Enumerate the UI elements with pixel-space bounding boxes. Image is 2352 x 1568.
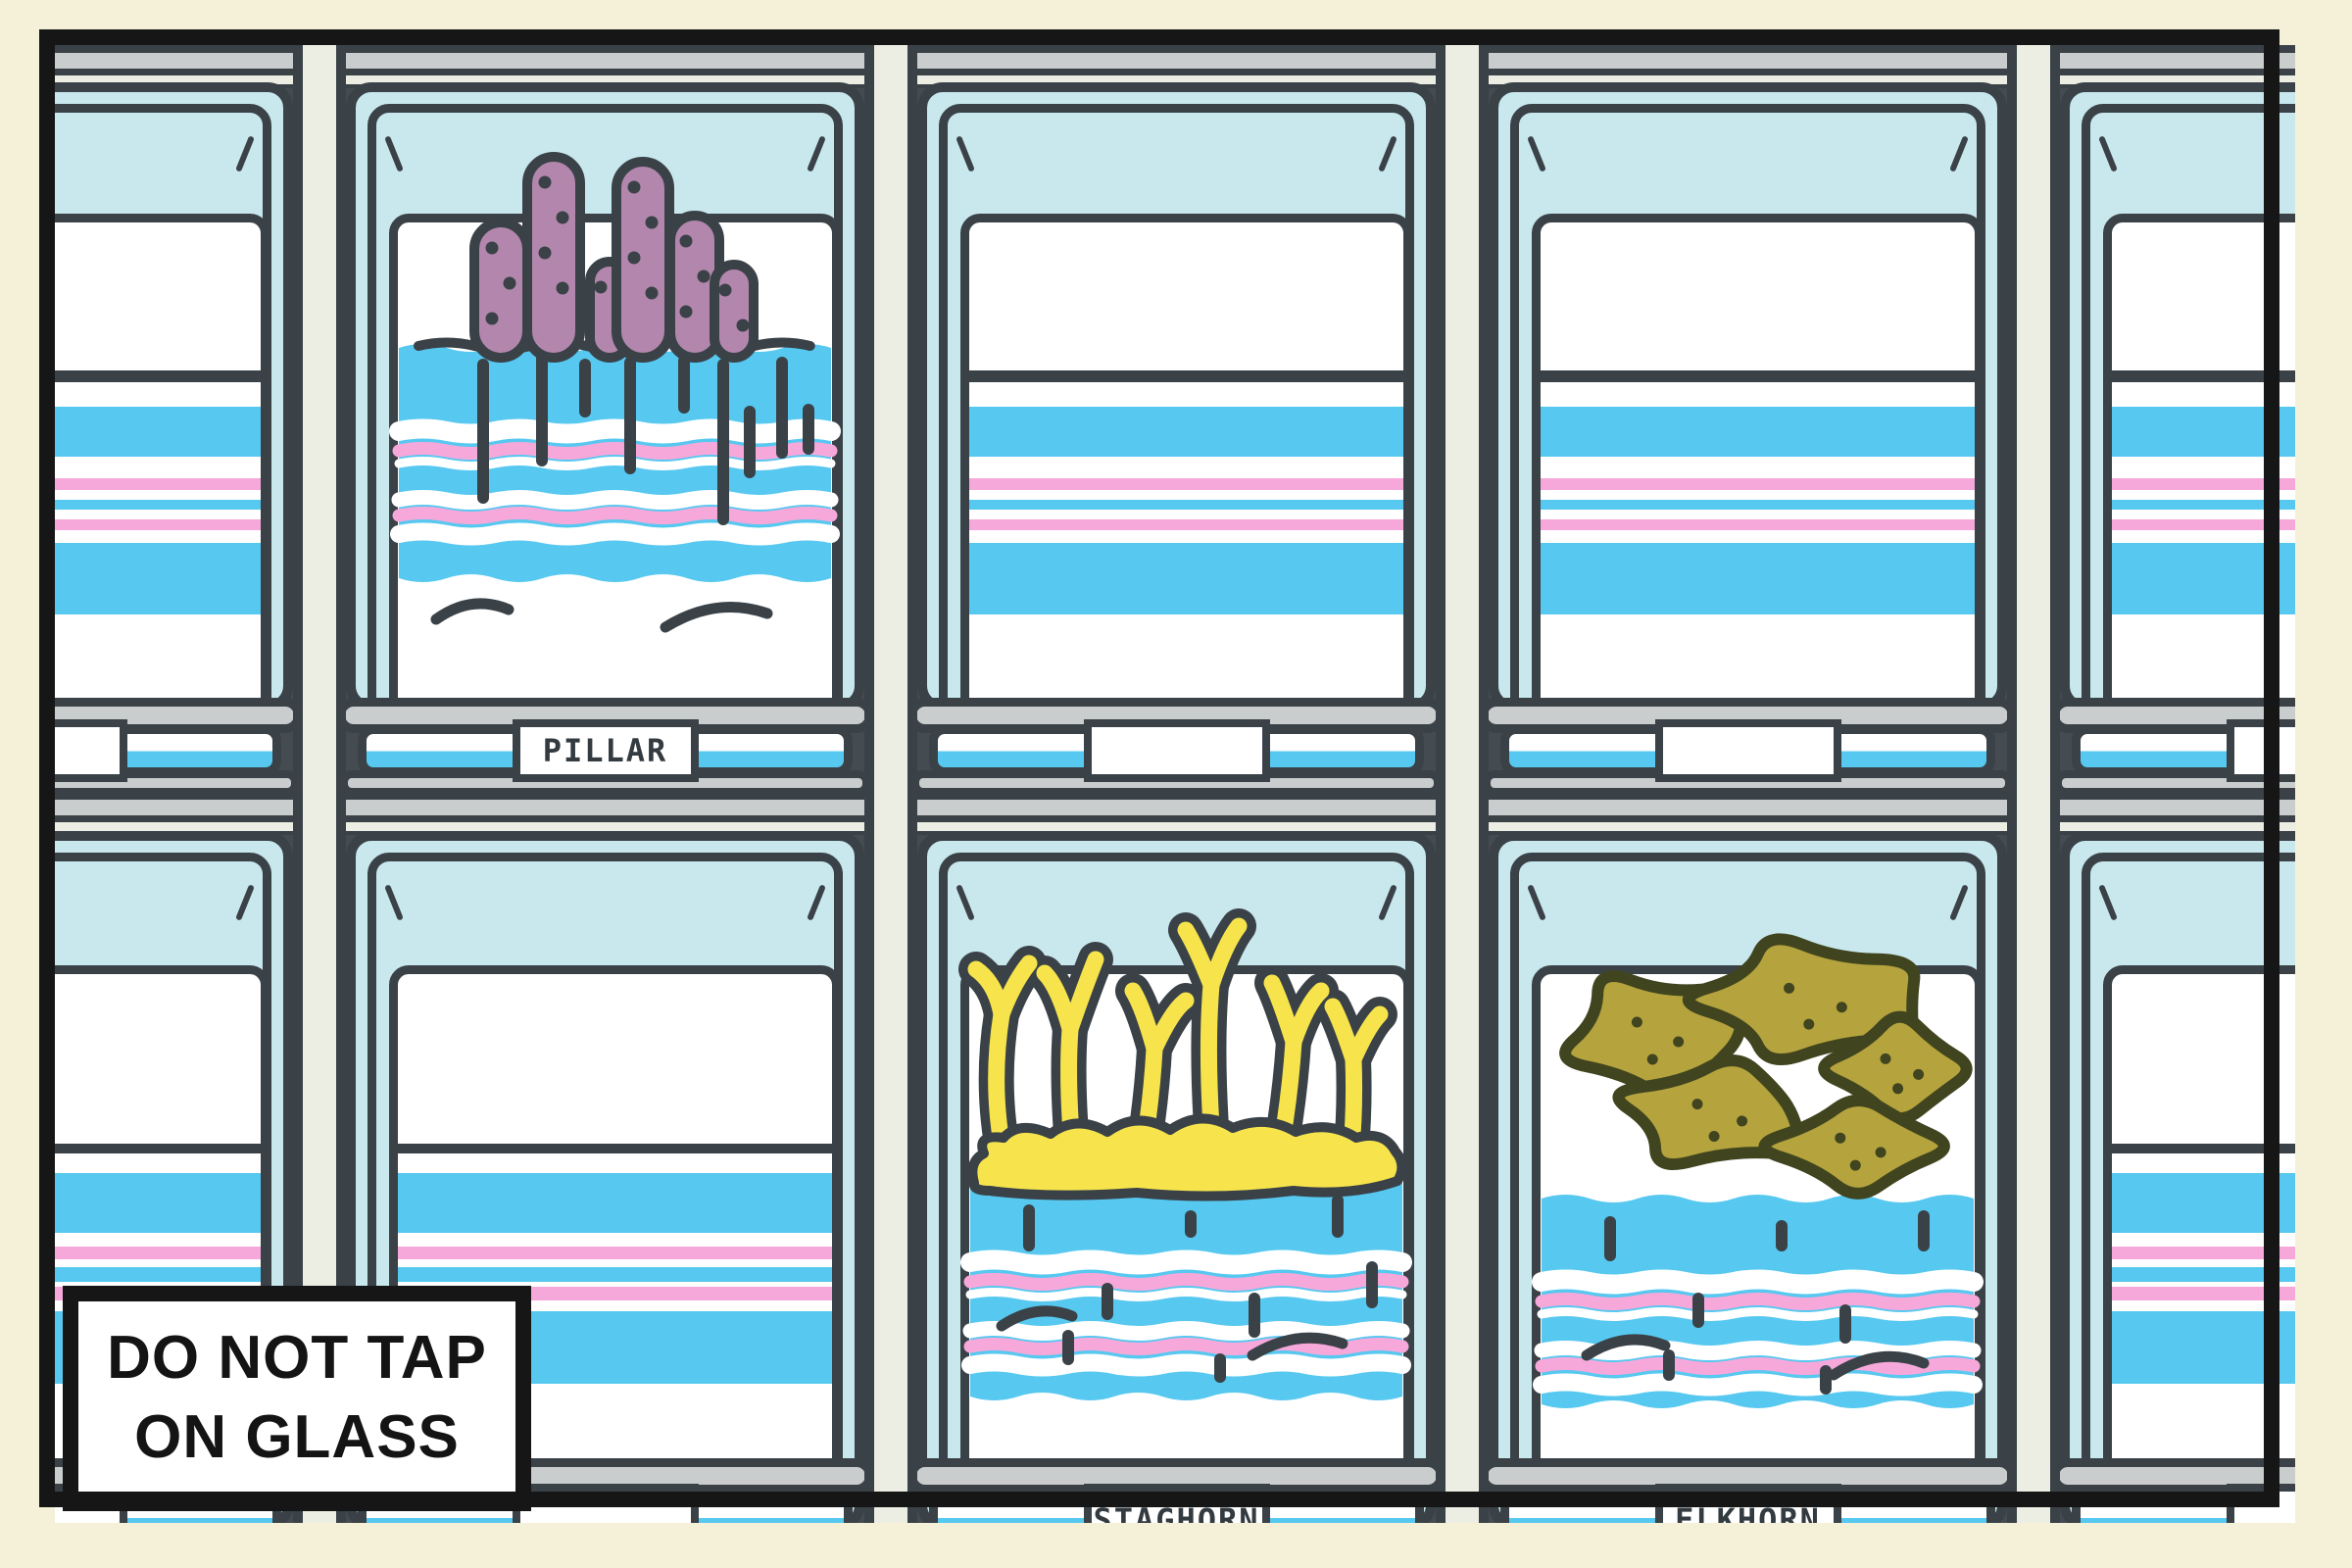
tank-shelf: STAGHORN xyxy=(907,1458,1445,1523)
aquarium-tank-staghorn: STAGHORN xyxy=(917,792,1436,1523)
tank-glass xyxy=(2060,82,2295,711)
tank-glass xyxy=(2060,831,2295,1523)
species-label: PILLAR xyxy=(543,732,668,769)
aquarium-tank xyxy=(1489,45,2007,796)
sign-line-2: ON GLASS xyxy=(134,1398,460,1478)
tank-top-frame xyxy=(55,792,299,835)
tank-shelf xyxy=(2050,1458,2295,1523)
backdrop-stripes xyxy=(2112,222,2295,711)
tank-backdrop-card xyxy=(2103,214,2295,711)
species-label-plate: ELKHORN xyxy=(1655,1484,1841,1523)
tank-backdrop-card xyxy=(1532,214,1984,711)
tank-top-frame xyxy=(911,792,1442,835)
tank-shelf: ELKHORN xyxy=(1479,1458,2017,1523)
tank-divider-post xyxy=(864,45,917,1523)
pillar-coral-illustration xyxy=(389,118,841,711)
species-label: ELKHORN xyxy=(1675,1501,1821,1523)
tank-shelf xyxy=(2050,698,2295,796)
backdrop-stripes xyxy=(55,222,261,711)
sign-line-1: DO NOT TAP xyxy=(107,1319,487,1398)
species-label-plate xyxy=(2227,1484,2296,1523)
aquarium-tank xyxy=(2060,45,2295,796)
staghorn-coral-illustration xyxy=(960,867,1412,1514)
tank-top-frame xyxy=(2054,792,2295,835)
tank-top-frame xyxy=(340,792,870,835)
tank-shelf xyxy=(1479,698,2017,796)
tank-glass xyxy=(55,82,293,711)
elkhorn-coral-illustration xyxy=(1532,867,1984,1514)
tank-backdrop-card xyxy=(2103,965,2295,1509)
aquarium-tank xyxy=(55,45,293,796)
do-not-tap-sign: DO NOT TAP ON GLASS xyxy=(63,1286,531,1511)
aquarium-scene: PILLAR xyxy=(0,0,2352,1568)
species-label-plate xyxy=(55,719,127,782)
species-label: STAGHORN xyxy=(1093,1501,1259,1523)
aquarium-tank xyxy=(2060,792,2295,1523)
backdrop-stripes xyxy=(969,222,1403,711)
backdrop-stripes xyxy=(2112,974,2295,1500)
tank-glass xyxy=(917,82,1436,711)
tank-backdrop-card xyxy=(55,214,269,711)
tank-glass xyxy=(1489,82,2007,711)
backdrop-stripes xyxy=(1541,222,1975,711)
species-label-plate xyxy=(2227,719,2296,782)
aquarium-tank xyxy=(917,45,1436,796)
species-label-plate xyxy=(1084,719,1270,782)
tank-divider-post xyxy=(1436,45,1489,1523)
tank-shelf xyxy=(55,698,303,796)
tank-glass xyxy=(917,831,1436,1523)
aquarium-tank-pillar: PILLAR xyxy=(346,45,864,796)
species-label-plate xyxy=(513,1484,699,1523)
tank-shelf xyxy=(907,698,1445,796)
aquarium-tank-elkhorn: ELKHORN xyxy=(1489,792,2007,1523)
species-label-plate xyxy=(1655,719,1841,782)
tank-divider-post xyxy=(2007,45,2060,1523)
tank-glass xyxy=(1489,831,2007,1523)
tank-glass xyxy=(346,82,864,711)
species-label-plate: PILLAR xyxy=(513,719,699,782)
tank-top-frame xyxy=(1483,792,2013,835)
tank-backdrop-card xyxy=(960,214,1412,711)
species-label-plate: STAGHORN xyxy=(1084,1484,1270,1523)
tank-shelf: PILLAR xyxy=(336,698,874,796)
scene-content: PILLAR xyxy=(55,45,2295,1523)
